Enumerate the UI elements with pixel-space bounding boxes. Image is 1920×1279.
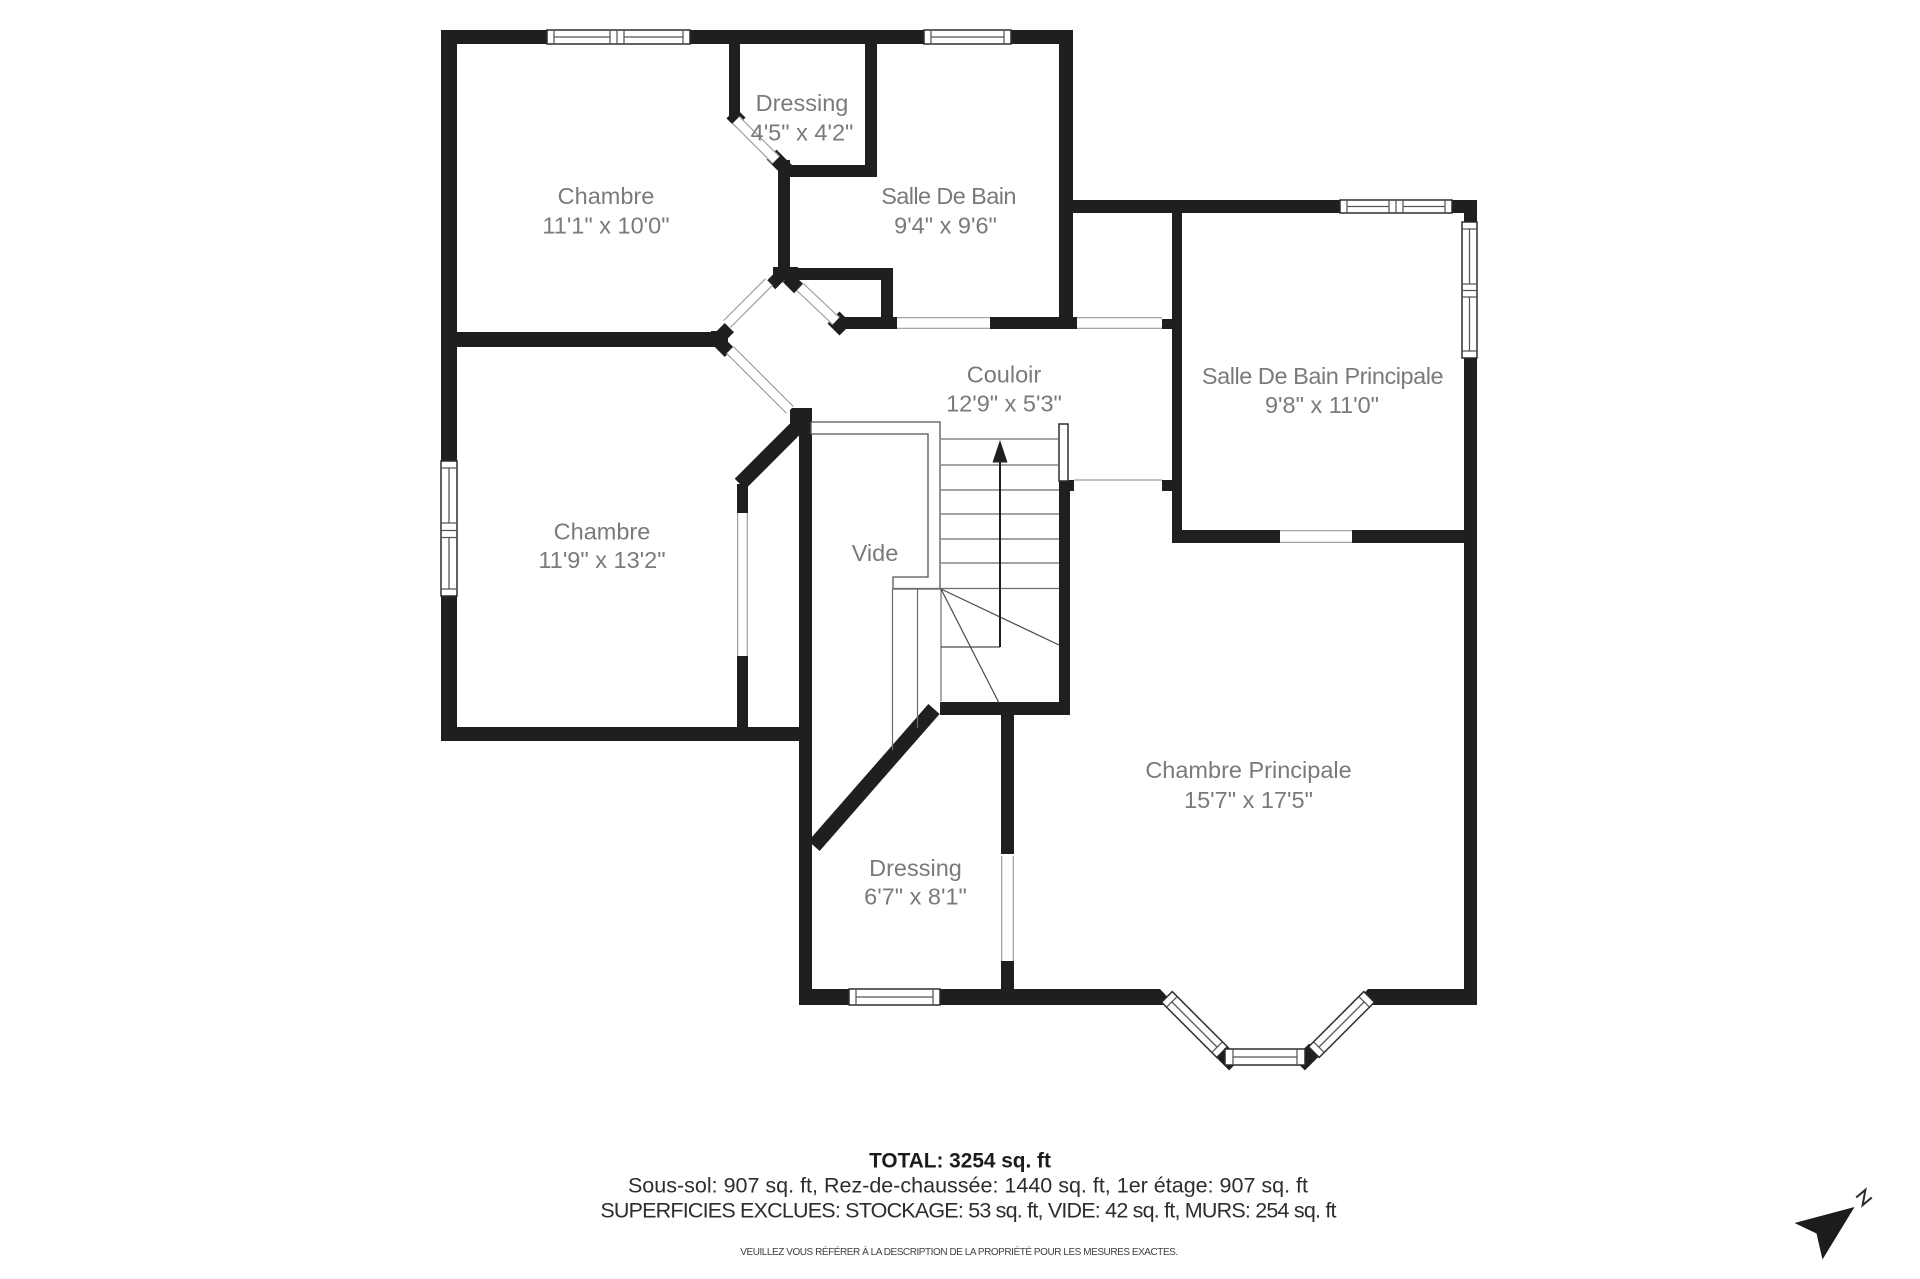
- svg-text:TOTAL: 3254 sq. ft: TOTAL: 3254 sq. ft: [869, 1150, 1051, 1173]
- svg-text:11'1" x 10'0": 11'1" x 10'0": [542, 213, 669, 239]
- svg-text:12'9" x 5'3": 12'9" x 5'3": [946, 391, 1062, 417]
- svg-text:Chambre Principale: Chambre Principale: [1145, 757, 1351, 783]
- svg-text:Salle De Bain Principale: Salle De Bain Principale: [1202, 363, 1444, 389]
- svg-text:Chambre: Chambre: [558, 183, 655, 209]
- svg-text:9'4" x 9'6": 9'4" x 9'6": [894, 213, 997, 239]
- svg-text:Couloir: Couloir: [967, 362, 1042, 388]
- svg-text:11'9" x 13'2": 11'9" x 13'2": [538, 547, 665, 573]
- svg-text:6'7" x 8'1": 6'7" x 8'1": [864, 884, 967, 910]
- svg-text:Sous-sol: 907 sq. ft, Rez-de-c: Sous-sol: 907 sq. ft, Rez-de-chaussée: 1…: [628, 1174, 1308, 1198]
- svg-text:Vide: Vide: [852, 540, 899, 566]
- svg-text:Dressing: Dressing: [869, 855, 962, 881]
- svg-text:SUPERFICIES EXCLUES: STOCKAGE:: SUPERFICIES EXCLUES: STOCKAGE: 53 sq. ft…: [600, 1199, 1336, 1223]
- svg-text:Salle De Bain: Salle De Bain: [881, 183, 1016, 209]
- svg-text:15'7" x 17'5": 15'7" x 17'5": [1184, 787, 1313, 813]
- svg-text:9'8" x 11'0": 9'8" x 11'0": [1265, 392, 1379, 418]
- svg-text:VEUILLEZ VOUS RÉFÉRER À LA DES: VEUILLEZ VOUS RÉFÉRER À LA DESCRIPTION D…: [740, 1245, 1177, 1258]
- svg-text:Chambre: Chambre: [554, 519, 651, 545]
- svg-text:Dressing: Dressing: [756, 90, 849, 116]
- svg-text:4'5" x 4'2": 4'5" x 4'2": [751, 120, 854, 146]
